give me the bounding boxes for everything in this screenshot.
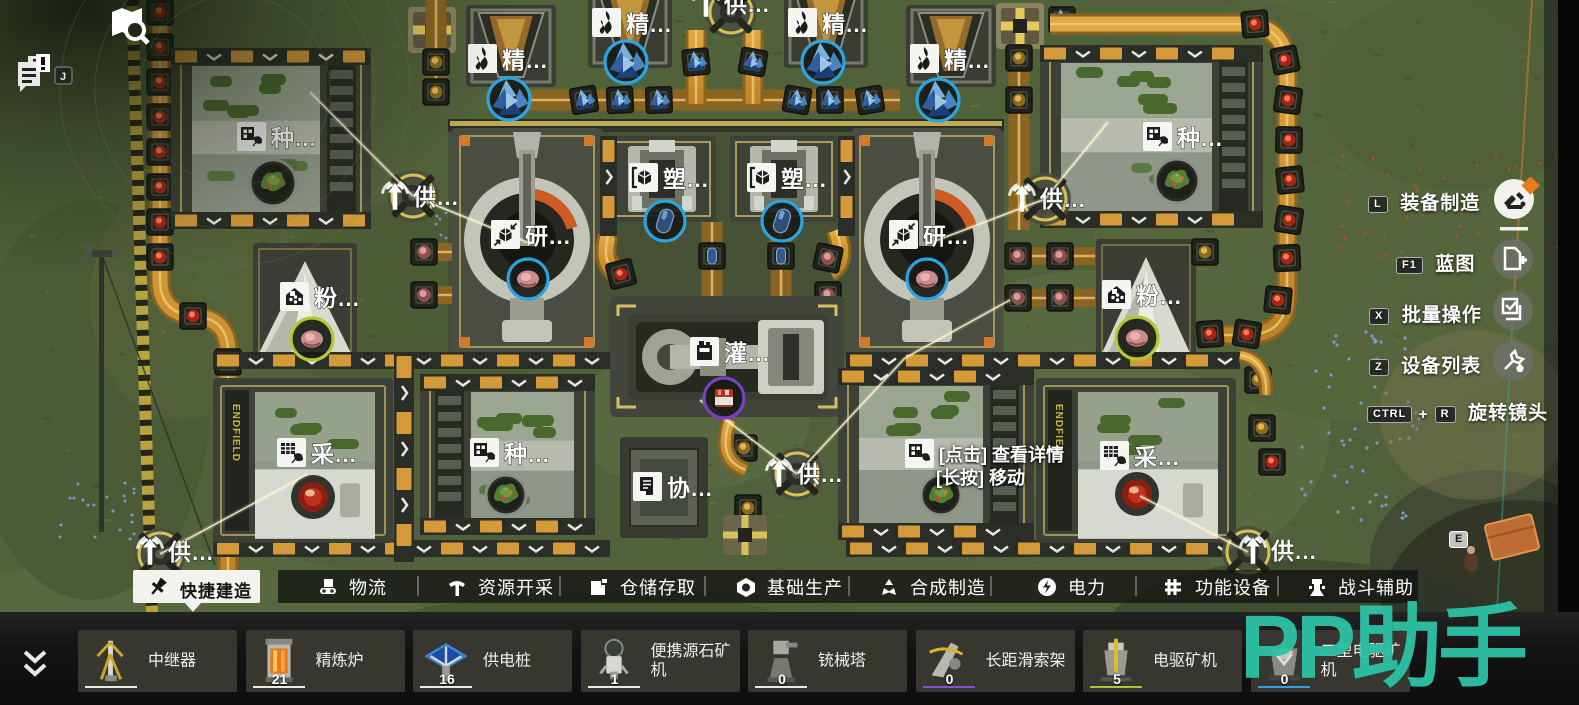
svg-text:研…: 研… [923,223,969,249]
svg-text:精…: 精… [626,11,672,37]
svg-text:供…: 供… [1270,538,1317,564]
svg-text:塑…: 塑… [663,166,709,192]
svg-text:种…: 种… [503,441,550,467]
svg-text:供…: 供… [167,539,214,565]
svg-text:粉…: 粉… [1136,283,1182,309]
svg-text:灌…: 灌… [724,340,770,366]
svg-text:协…: 协… [667,475,713,501]
svg-text:种…: 种… [1176,125,1223,151]
svg-text:采…: 采… [311,441,357,467]
svg-text:塑…: 塑… [781,166,827,192]
svg-text:J: J [60,71,66,83]
svg-text:精…: 精… [944,47,990,73]
svg-text:采…: 采… [1134,444,1180,470]
svg-text:ENDFIELD: ENDFIELD [230,404,241,462]
svg-text:供…: 供… [723,0,770,17]
svg-text:精…: 精… [822,11,868,37]
svg-text:供…: 供… [796,461,843,487]
svg-text:供…: 供… [1039,186,1086,212]
